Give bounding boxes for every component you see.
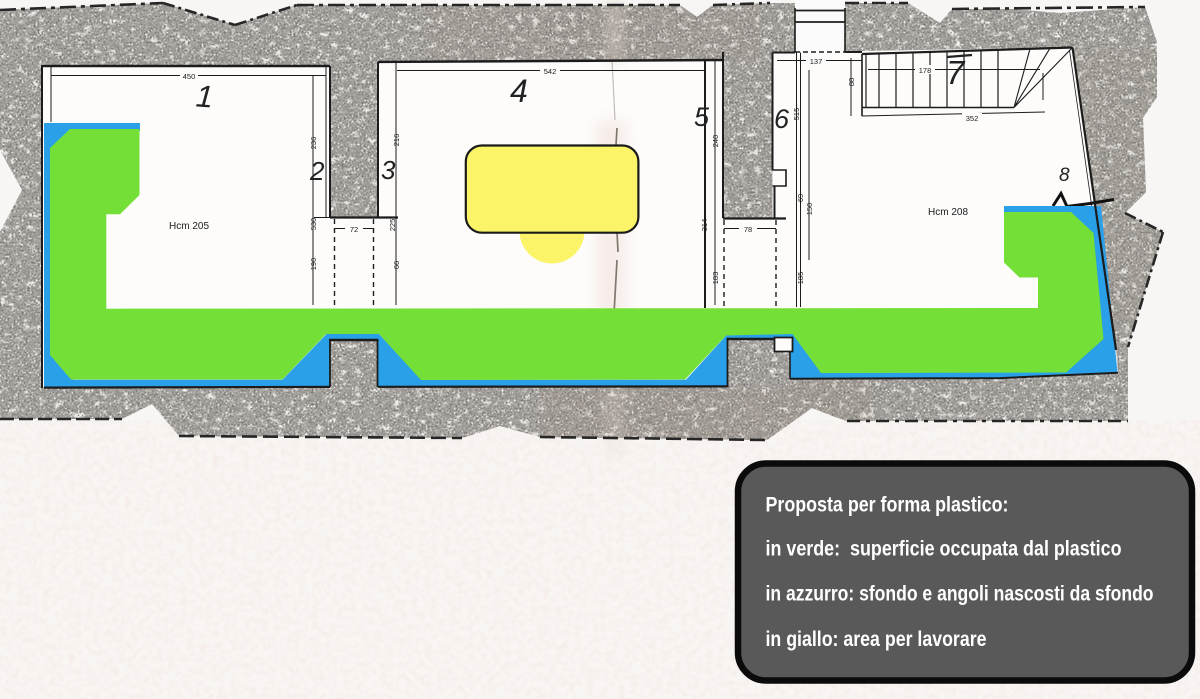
svg-text:5: 5 bbox=[694, 102, 710, 132]
svg-text:240: 240 bbox=[711, 135, 720, 148]
svg-text:78: 78 bbox=[744, 225, 752, 234]
svg-text:in azzurro: sfondo e angoli na: in azzurro: sfondo e angoli nascosti da … bbox=[766, 583, 1154, 606]
svg-text:in verde: superficie occupata: in verde: superficie occupata dal plasti… bbox=[766, 538, 1122, 561]
svg-text:190: 190 bbox=[309, 258, 318, 271]
svg-text:530: 530 bbox=[309, 218, 318, 231]
svg-text:Hcm 208: Hcm 208 bbox=[928, 207, 968, 218]
svg-text:1: 1 bbox=[195, 78, 215, 114]
svg-text:178: 178 bbox=[919, 66, 932, 75]
svg-text:69: 69 bbox=[796, 194, 805, 202]
svg-text:4: 4 bbox=[510, 73, 528, 109]
svg-text:236: 236 bbox=[309, 137, 318, 150]
svg-text:7: 7 bbox=[946, 54, 966, 91]
svg-text:450: 450 bbox=[183, 72, 196, 81]
svg-text:137: 137 bbox=[810, 57, 823, 66]
svg-text:3: 3 bbox=[381, 155, 396, 185]
svg-text:183: 183 bbox=[711, 272, 720, 285]
svg-text:88: 88 bbox=[847, 78, 856, 86]
svg-text:216: 216 bbox=[392, 134, 401, 147]
svg-text:2: 2 bbox=[309, 156, 325, 186]
svg-text:6: 6 bbox=[774, 104, 790, 134]
svg-text:66: 66 bbox=[392, 261, 401, 269]
svg-text:72: 72 bbox=[350, 225, 358, 234]
svg-text:Proposta per forma plastico:: Proposta per forma plastico: bbox=[766, 494, 1009, 517]
svg-text:515: 515 bbox=[792, 108, 801, 121]
svg-text:Hcm 205: Hcm 205 bbox=[169, 221, 209, 232]
svg-text:225: 225 bbox=[388, 219, 397, 232]
svg-text:542: 542 bbox=[544, 67, 557, 76]
svg-text:150: 150 bbox=[805, 203, 814, 216]
svg-text:352: 352 bbox=[966, 114, 979, 123]
svg-text:in giallo: area per lavorare: in giallo: area per lavorare bbox=[766, 628, 987, 651]
svg-text:185: 185 bbox=[796, 272, 805, 285]
svg-text:8: 8 bbox=[1059, 165, 1070, 186]
svg-text:314: 314 bbox=[700, 219, 709, 232]
